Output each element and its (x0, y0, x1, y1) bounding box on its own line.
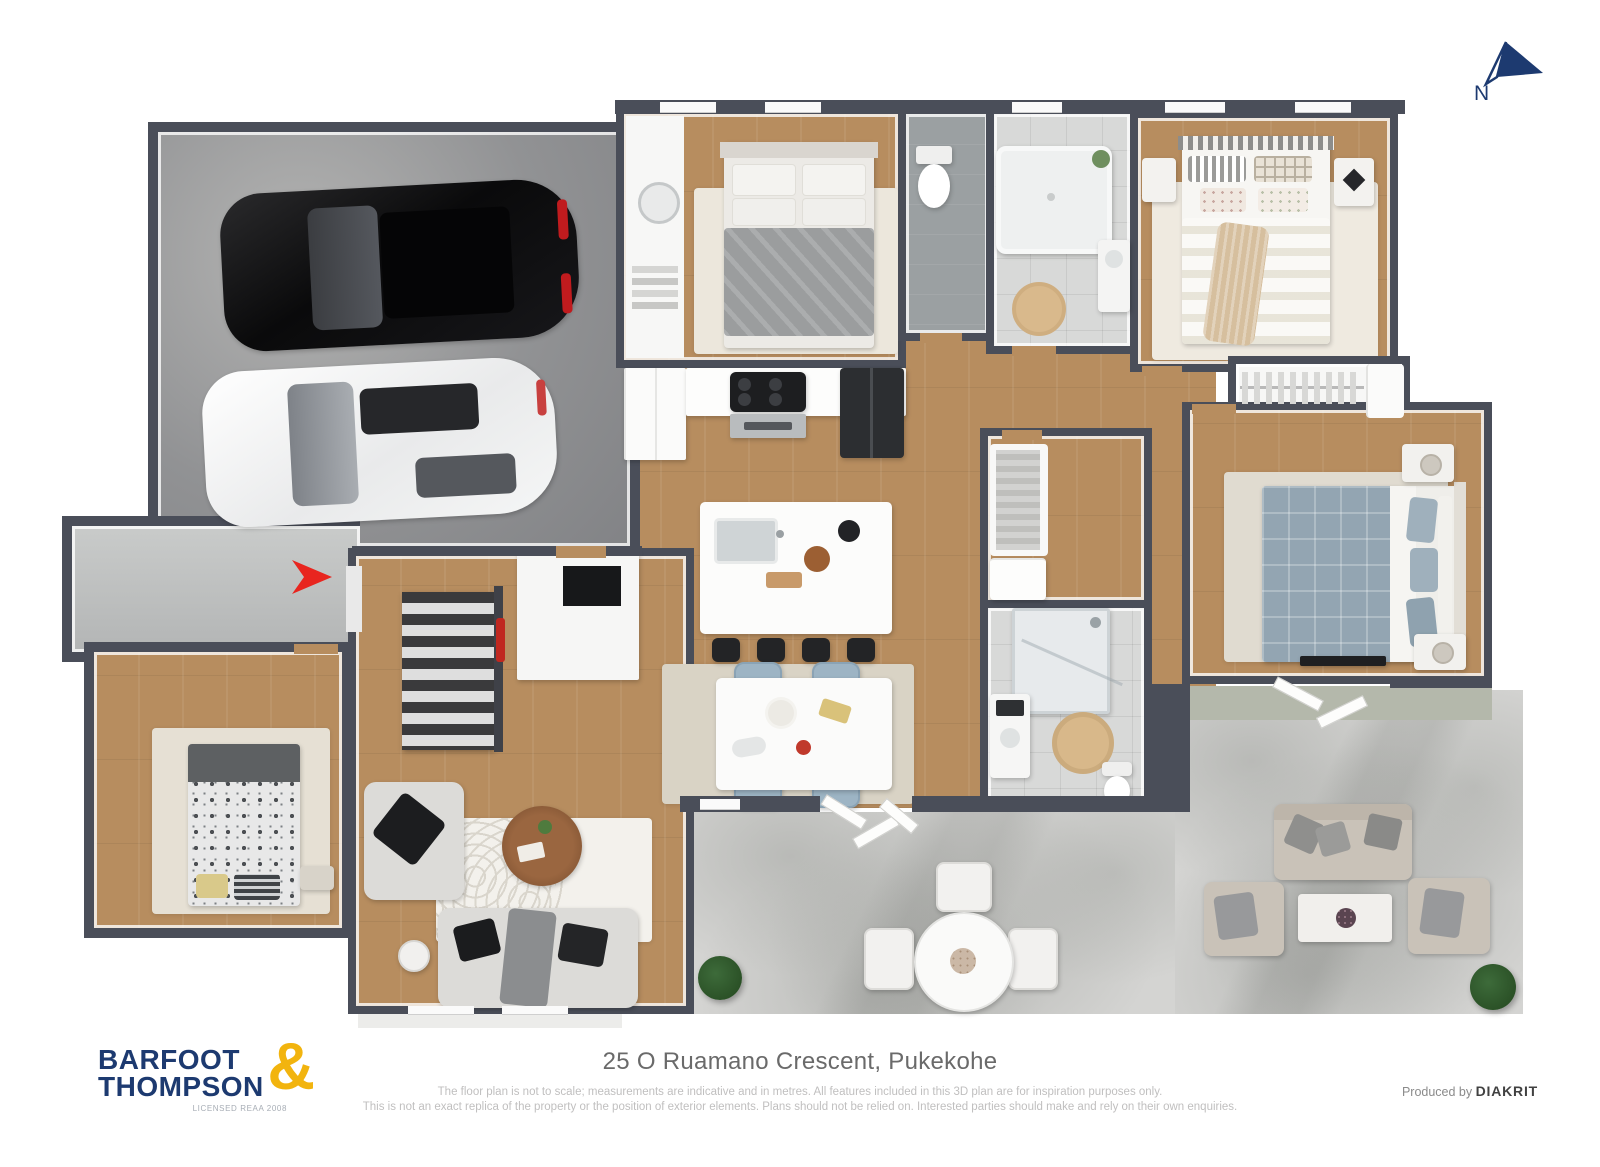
north-arrow: N (1468, 36, 1552, 114)
bedroom-3-nightstand (1334, 158, 1374, 206)
table-centerpiece (950, 948, 976, 974)
step-strip (358, 1012, 622, 1028)
robe-door-opening (1002, 430, 1042, 440)
bedroom-2-blanket (724, 228, 874, 336)
bedroom-3-nightstand (1142, 158, 1176, 202)
window (765, 102, 821, 113)
bath-mat (1012, 282, 1066, 336)
outdoor-cushion (1419, 887, 1465, 938)
master-pillow (1406, 497, 1438, 544)
living-window (408, 1006, 474, 1015)
outdoor-cushion (1314, 820, 1351, 857)
bar-stool (847, 638, 875, 662)
outdoor-armchair (1204, 882, 1284, 956)
laundry-nook (626, 116, 684, 358)
sofa-throw (499, 908, 557, 1008)
bedroom-3-pillow-striped (1188, 156, 1246, 182)
disclaimer-line-2: This is not an exact replica of the prop… (0, 1101, 1600, 1113)
produced-by-label: Produced by (1402, 1085, 1476, 1099)
outdoor-dining-table (914, 912, 1014, 1012)
hanging-clothes (632, 278, 678, 285)
white-car-sunroof (359, 383, 479, 435)
dining-red-bowl (796, 740, 811, 755)
staircase (402, 592, 494, 750)
outdoor-chair (936, 862, 992, 912)
white-car-rear-window (415, 453, 517, 498)
bathtub-drain (1047, 193, 1055, 201)
master-nightstand (1414, 634, 1466, 670)
bar-stool (712, 638, 740, 662)
robe-rack (990, 444, 1048, 556)
outdoor-chair (864, 928, 914, 990)
outdoor-chair (1008, 928, 1058, 990)
black-car (218, 177, 582, 353)
coffee-table-plant (538, 820, 552, 834)
kitchen-tall-cabinets (624, 368, 686, 460)
bedroom-4-blanket (188, 744, 300, 782)
window (1012, 102, 1062, 113)
robe-clothes (996, 450, 1040, 550)
sofa (438, 908, 638, 1008)
oven-window (744, 422, 792, 430)
black-car-windshield (307, 205, 383, 330)
bar-stool (757, 638, 785, 662)
dining-board (818, 698, 852, 724)
burner (738, 378, 751, 391)
refrigerator (840, 368, 904, 458)
dining-platter (731, 735, 768, 759)
bedroom-3-headboard (1178, 136, 1334, 150)
closet-clothes (1242, 372, 1362, 404)
bar-stool (802, 638, 830, 662)
toilet (916, 146, 952, 164)
floor-plan: N (0, 0, 1600, 1167)
nightstand-lamp (1420, 454, 1442, 476)
outdoor-coffee-table (1298, 894, 1392, 942)
ensuite-vanity-decor (996, 700, 1024, 716)
ensuite-vanity (990, 694, 1030, 778)
burner (769, 393, 782, 406)
entry-porch (62, 516, 360, 662)
burner (769, 378, 782, 391)
hanging-clothes (632, 290, 678, 297)
sofa-cushion (557, 922, 609, 967)
exterior-wall-top (615, 100, 1405, 114)
dining-flowers (768, 700, 794, 726)
bedroom-4-pillow-striped (234, 874, 280, 900)
hanging-clothes (632, 266, 678, 273)
wc (898, 106, 996, 341)
bedroom-4-door-opening (294, 644, 338, 654)
bedroom-2-pillow (732, 164, 796, 196)
washing-machine (638, 182, 680, 224)
property-address: 25 O Ruamano Crescent, Pukekohe (0, 1048, 1600, 1076)
hall-cupboard (517, 552, 639, 680)
bathroom-door-opening (1012, 346, 1056, 356)
sofa-cushion (452, 917, 501, 962)
bedroom-3-bed (1182, 136, 1330, 344)
vanity-basin (1105, 250, 1123, 268)
hanging-clothes (632, 302, 678, 309)
cupboard-counter (563, 566, 621, 606)
island-tray (766, 572, 802, 588)
bathroom-plant (1092, 150, 1110, 168)
nightstand-lamp (1432, 642, 1454, 664)
ensuite-toilet (1102, 762, 1132, 776)
bedroom-4-bed (188, 744, 300, 906)
white-car-taillight (536, 379, 547, 415)
master-door-opening (1192, 404, 1236, 414)
white-car (200, 355, 560, 529)
black-car-roof (379, 206, 514, 319)
dining-table (716, 678, 892, 790)
shower-glass (1021, 639, 1123, 687)
coffee-table-books (517, 841, 546, 862)
north-label: N (1474, 82, 1489, 105)
master-pillow-white (1438, 496, 1452, 652)
toilet-bowl (918, 164, 950, 208)
bedroom-2-pillow (732, 198, 796, 226)
bedroom-2-pillow (802, 164, 866, 196)
wc-door-opening (920, 333, 962, 343)
window (700, 799, 740, 810)
floor-lamp (398, 940, 430, 972)
outdoor-armchair (1408, 878, 1490, 954)
black-car-taillight (561, 273, 573, 313)
bedroom-4-pillow-yellow (196, 874, 228, 898)
producer-name: DIAKRIT (1476, 1083, 1538, 1099)
window (1165, 102, 1225, 113)
robe-drawers (990, 558, 1046, 600)
outdoor-cushion (1213, 891, 1259, 940)
bedroom-3-pillow-floral (1258, 188, 1308, 212)
master-nightstand (1402, 444, 1454, 482)
oven (730, 414, 806, 438)
kitchen-island (700, 502, 892, 634)
bedroom-3-door-opening (1142, 366, 1182, 376)
bedroom-3-pillow-plaid (1254, 156, 1312, 182)
window (1295, 102, 1351, 113)
island-kettle (838, 520, 860, 542)
potted-plant (698, 956, 742, 1000)
ensuite-basin (1000, 728, 1020, 748)
armchair-cushion (371, 791, 447, 867)
bedroom-2-bed (724, 142, 874, 348)
bedroom-4-side-table (300, 866, 334, 890)
outdoor-cushion (1363, 813, 1403, 851)
black-car-taillight (557, 199, 569, 239)
entry-door-opening (346, 566, 362, 632)
produced-by: Produced by DIAKRIT (1402, 1083, 1538, 1099)
outdoor-sofa (1274, 804, 1412, 880)
armchair (364, 782, 464, 900)
living-window (502, 1006, 568, 1015)
disclaimer-line-1: The floor plan is not to scale; measurem… (0, 1086, 1600, 1098)
island-sink (714, 518, 778, 564)
bedroom-2-pillow (802, 198, 866, 226)
nightstand-decor (1343, 169, 1366, 192)
garage-door-opening (556, 546, 606, 558)
burner (738, 393, 751, 406)
potted-plant (1470, 964, 1516, 1010)
patio-wall-step (1150, 684, 1190, 812)
stair-banister (494, 586, 503, 752)
master-pillow (1410, 548, 1438, 592)
island-bowl (804, 546, 830, 572)
coffee-table (502, 806, 582, 886)
shower-head (1090, 617, 1101, 628)
outdoor-table-flowers (1336, 908, 1356, 928)
master-duvet (1262, 486, 1390, 662)
bedroom-3-pillow-floral (1200, 188, 1246, 212)
master-patio-wall (1390, 676, 1492, 688)
bedroom-2-headboard (720, 142, 878, 158)
red-bike (496, 618, 505, 662)
cooktop (730, 372, 806, 412)
window (660, 102, 716, 113)
white-car-windshield (287, 381, 359, 506)
bathroom-vanity (1098, 240, 1130, 312)
master-bench (1300, 656, 1386, 666)
island-faucet (776, 530, 784, 538)
patio-wall-mid (912, 796, 1184, 812)
closet-shelves (1366, 364, 1404, 418)
